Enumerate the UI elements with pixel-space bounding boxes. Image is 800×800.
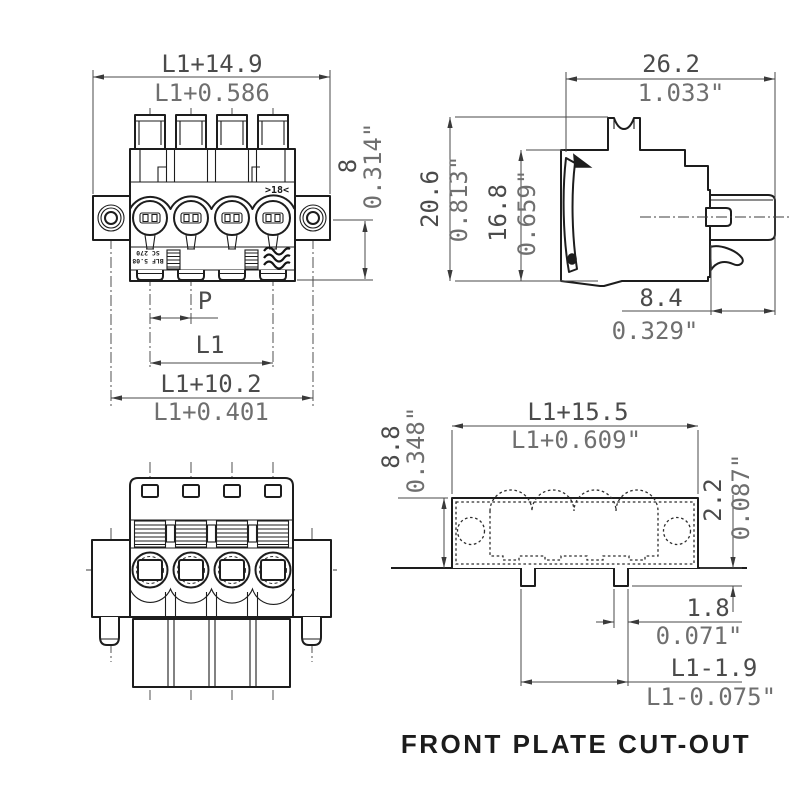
dim-tab-height-mm: 2.2 xyxy=(699,478,727,521)
dim-side-height-mm: 20.6 xyxy=(416,170,444,228)
body-marking-1: SC 270 xyxy=(136,249,160,257)
dim-cutout-width-in: L1+0.609" xyxy=(511,426,641,454)
dim-cutout-height-mm: 8.8 xyxy=(377,425,405,468)
clamp-screw-blocks xyxy=(135,115,288,149)
body-marking-2: BLF 5.08 xyxy=(132,257,163,265)
rear-view-part xyxy=(92,478,331,687)
dim-front-width-in: L1+0.586 xyxy=(154,79,270,107)
dim-lever-height-in: 0.659" xyxy=(513,170,541,257)
dim-side-width-in: 1.033" xyxy=(638,79,725,107)
dim-cutout-width-mm: L1+15.5 xyxy=(527,398,628,426)
dim-tab-height-in: 0.087" xyxy=(727,454,755,541)
cutout-caption: FRONT PLATE CUT-OUT xyxy=(401,729,751,759)
technical-drawing-page: >18< SC 270 BLF 5.08 L1+14.9 L1+0.586 8 … xyxy=(0,0,800,800)
front-view: >18< SC 270 BLF 5.08 L1+14.9 L1+0.586 8 … xyxy=(93,50,387,426)
cutout-view: L1+15.5 L1+0.609" 8.8 0.348" 2.2 0.087" … xyxy=(377,398,776,759)
dim-front-height-in: 0.314" xyxy=(359,123,387,210)
dim-tab-span-in: L1-0.075" xyxy=(646,683,776,711)
side-view: 26.2 1.033" 20.6 0.813" 16.8 0.659" 8.4 … xyxy=(416,50,790,345)
dim-cutout-height-in: 0.348" xyxy=(402,407,430,494)
dim-hole-span-mm: L1+10.2 xyxy=(160,370,261,398)
dim-nose-length-mm: 8.4 xyxy=(639,284,682,312)
dim-tab-width-mm: 1.8 xyxy=(686,594,729,622)
connector-drawing: >18< SC 270 BLF 5.08 L1+14.9 L1+0.586 8 … xyxy=(0,0,800,800)
dim-pitch: P xyxy=(198,287,212,315)
dim-tab-span-mm: L1-1.9 xyxy=(671,654,758,682)
dim-front-height-mm: 8 xyxy=(334,159,362,173)
dim-front-width-mm: L1+14.9 xyxy=(161,50,262,78)
material-marking: >18< xyxy=(265,185,289,196)
rear-view xyxy=(86,462,337,700)
dim-length-l1: L1 xyxy=(196,331,225,359)
dim-nose-length-in: 0.329" xyxy=(612,317,699,345)
dim-side-width-mm: 26.2 xyxy=(642,50,700,78)
dim-lever-height-mm: 16.8 xyxy=(484,184,512,242)
dim-tab-width-in: 0.071" xyxy=(656,622,743,650)
side-view-part xyxy=(561,118,790,286)
dim-side-height-in: 0.813" xyxy=(445,156,473,243)
front-view-part: >18< SC 270 BLF 5.08 xyxy=(93,115,330,281)
dim-hole-span-in: L1+0.401 xyxy=(153,398,269,426)
